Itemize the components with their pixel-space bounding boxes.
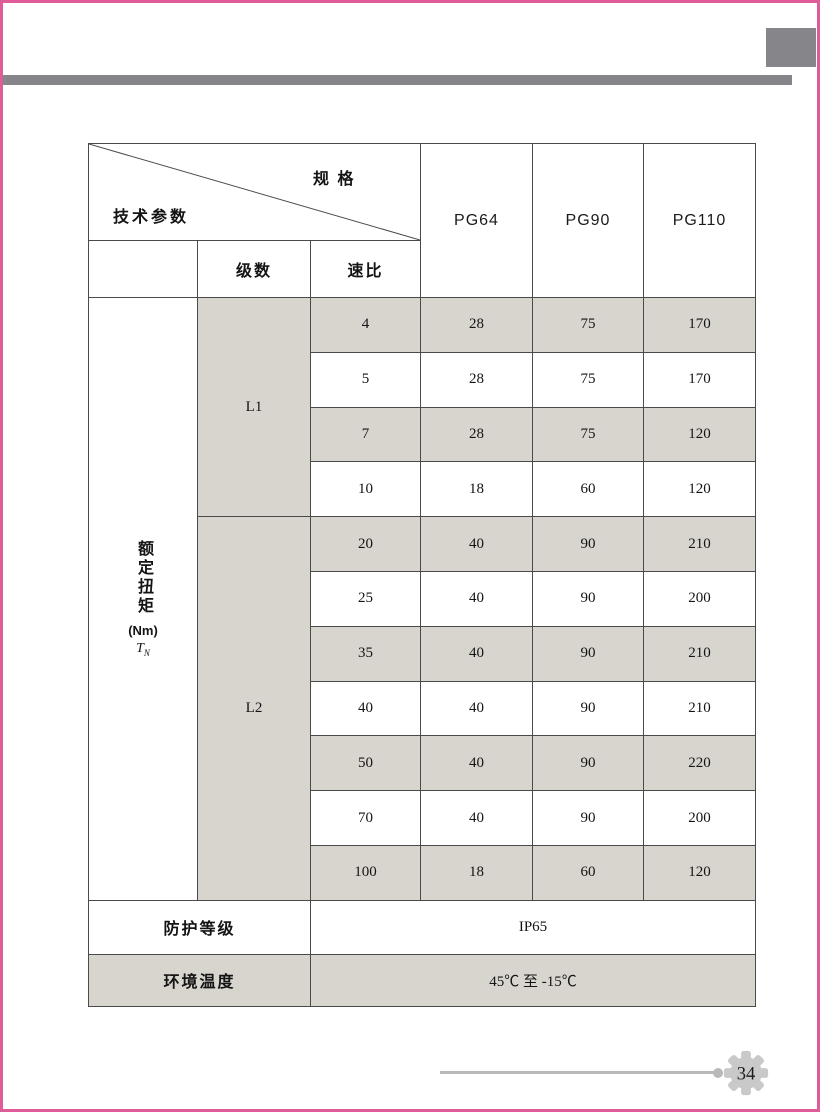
pg90-value-cell: 90 — [533, 517, 644, 572]
pg90-value-cell: 60 — [533, 462, 644, 517]
stage-group-l2-cell: L2 — [198, 517, 311, 901]
footer-rule-line — [440, 1071, 718, 1074]
corner-spec-label: 规 格 — [313, 165, 355, 189]
pg90-value-cell: 90 — [533, 682, 644, 737]
pg64-value-cell: 18 — [421, 846, 533, 901]
ratio-cell: 25 — [311, 572, 421, 627]
spec-table: 规 格 技术参数 PG64 PG90 PG110 级数 速比 额定扭矩 (Nm)… — [88, 143, 756, 1007]
pg64-value-cell: 40 — [421, 791, 533, 846]
pg90-value-cell: 90 — [533, 627, 644, 682]
footer-rule-dot — [713, 1068, 723, 1078]
pg64-value-cell: 40 — [421, 572, 533, 627]
pg90-value-cell: 60 — [533, 846, 644, 901]
ratio-cell: 40 — [311, 682, 421, 737]
ratio-cell: 4 — [311, 298, 421, 353]
pg90-value-cell: 90 — [533, 572, 644, 627]
pg110-value-cell: 210 — [644, 517, 756, 572]
column-header-pg90: PG90 — [533, 144, 644, 298]
pg64-value-cell: 40 — [421, 736, 533, 791]
pg90-value-cell: 90 — [533, 736, 644, 791]
protection-class-label: 防护等级 — [89, 901, 311, 955]
pg110-value-cell: 210 — [644, 682, 756, 737]
pg64-value-cell: 28 — [421, 298, 533, 353]
pg110-value-cell: 200 — [644, 791, 756, 846]
gear-icon: 34 — [723, 1050, 769, 1096]
header-rule-bar — [3, 75, 792, 85]
subheader-stages: 级数 — [198, 241, 311, 298]
pg64-value-cell: 18 — [421, 462, 533, 517]
pg64-value-cell: 40 — [421, 682, 533, 737]
pg110-value-cell: 170 — [644, 353, 756, 408]
torque-symbol-label: TN — [136, 641, 150, 658]
ratio-cell: 50 — [311, 736, 421, 791]
ratio-cell: 100 — [311, 846, 421, 901]
ratio-cell: 70 — [311, 791, 421, 846]
pg110-value-cell: 210 — [644, 627, 756, 682]
pg64-value-cell: 28 — [421, 408, 533, 463]
pg64-value-cell: 40 — [421, 627, 533, 682]
table-corner-cell: 规 格 技术参数 — [89, 144, 421, 241]
pg110-value-cell: 120 — [644, 408, 756, 463]
ratio-cell: 5 — [311, 353, 421, 408]
pg64-value-cell: 40 — [421, 517, 533, 572]
ambient-temp-value: 45℃ 至 -15℃ — [311, 955, 756, 1007]
pg90-value-cell: 75 — [533, 408, 644, 463]
corner-params-label: 技术参数 — [113, 203, 189, 227]
torque-unit-label: (Nm) — [128, 623, 158, 638]
pg90-value-cell: 75 — [533, 353, 644, 408]
pg110-value-cell: 170 — [644, 298, 756, 353]
column-header-pg110: PG110 — [644, 144, 756, 298]
ratio-cell: 7 — [311, 408, 421, 463]
empty-header-cell — [89, 241, 198, 298]
ambient-temp-label: 环境温度 — [89, 955, 311, 1007]
rated-torque-label-cell: 额定扭矩 (Nm) TN — [89, 298, 198, 901]
page-number: 34 — [737, 1064, 756, 1085]
ratio-cell: 35 — [311, 627, 421, 682]
stage-group-l1-cell: L1 — [198, 298, 311, 517]
rated-torque-vertical-label: 额定扭矩 — [135, 540, 151, 616]
column-header-pg64: PG64 — [421, 144, 533, 298]
ratio-cell: 10 — [311, 462, 421, 517]
pg64-value-cell: 28 — [421, 353, 533, 408]
pg90-value-cell: 75 — [533, 298, 644, 353]
pg110-value-cell: 120 — [644, 462, 756, 517]
pg110-value-cell: 220 — [644, 736, 756, 791]
protection-class-value: IP65 — [311, 901, 756, 955]
pg110-value-cell: 120 — [644, 846, 756, 901]
subheader-ratio: 速比 — [311, 241, 421, 298]
pg110-value-cell: 200 — [644, 572, 756, 627]
ratio-cell: 20 — [311, 517, 421, 572]
pg90-value-cell: 90 — [533, 791, 644, 846]
header-corner-block — [766, 28, 816, 67]
